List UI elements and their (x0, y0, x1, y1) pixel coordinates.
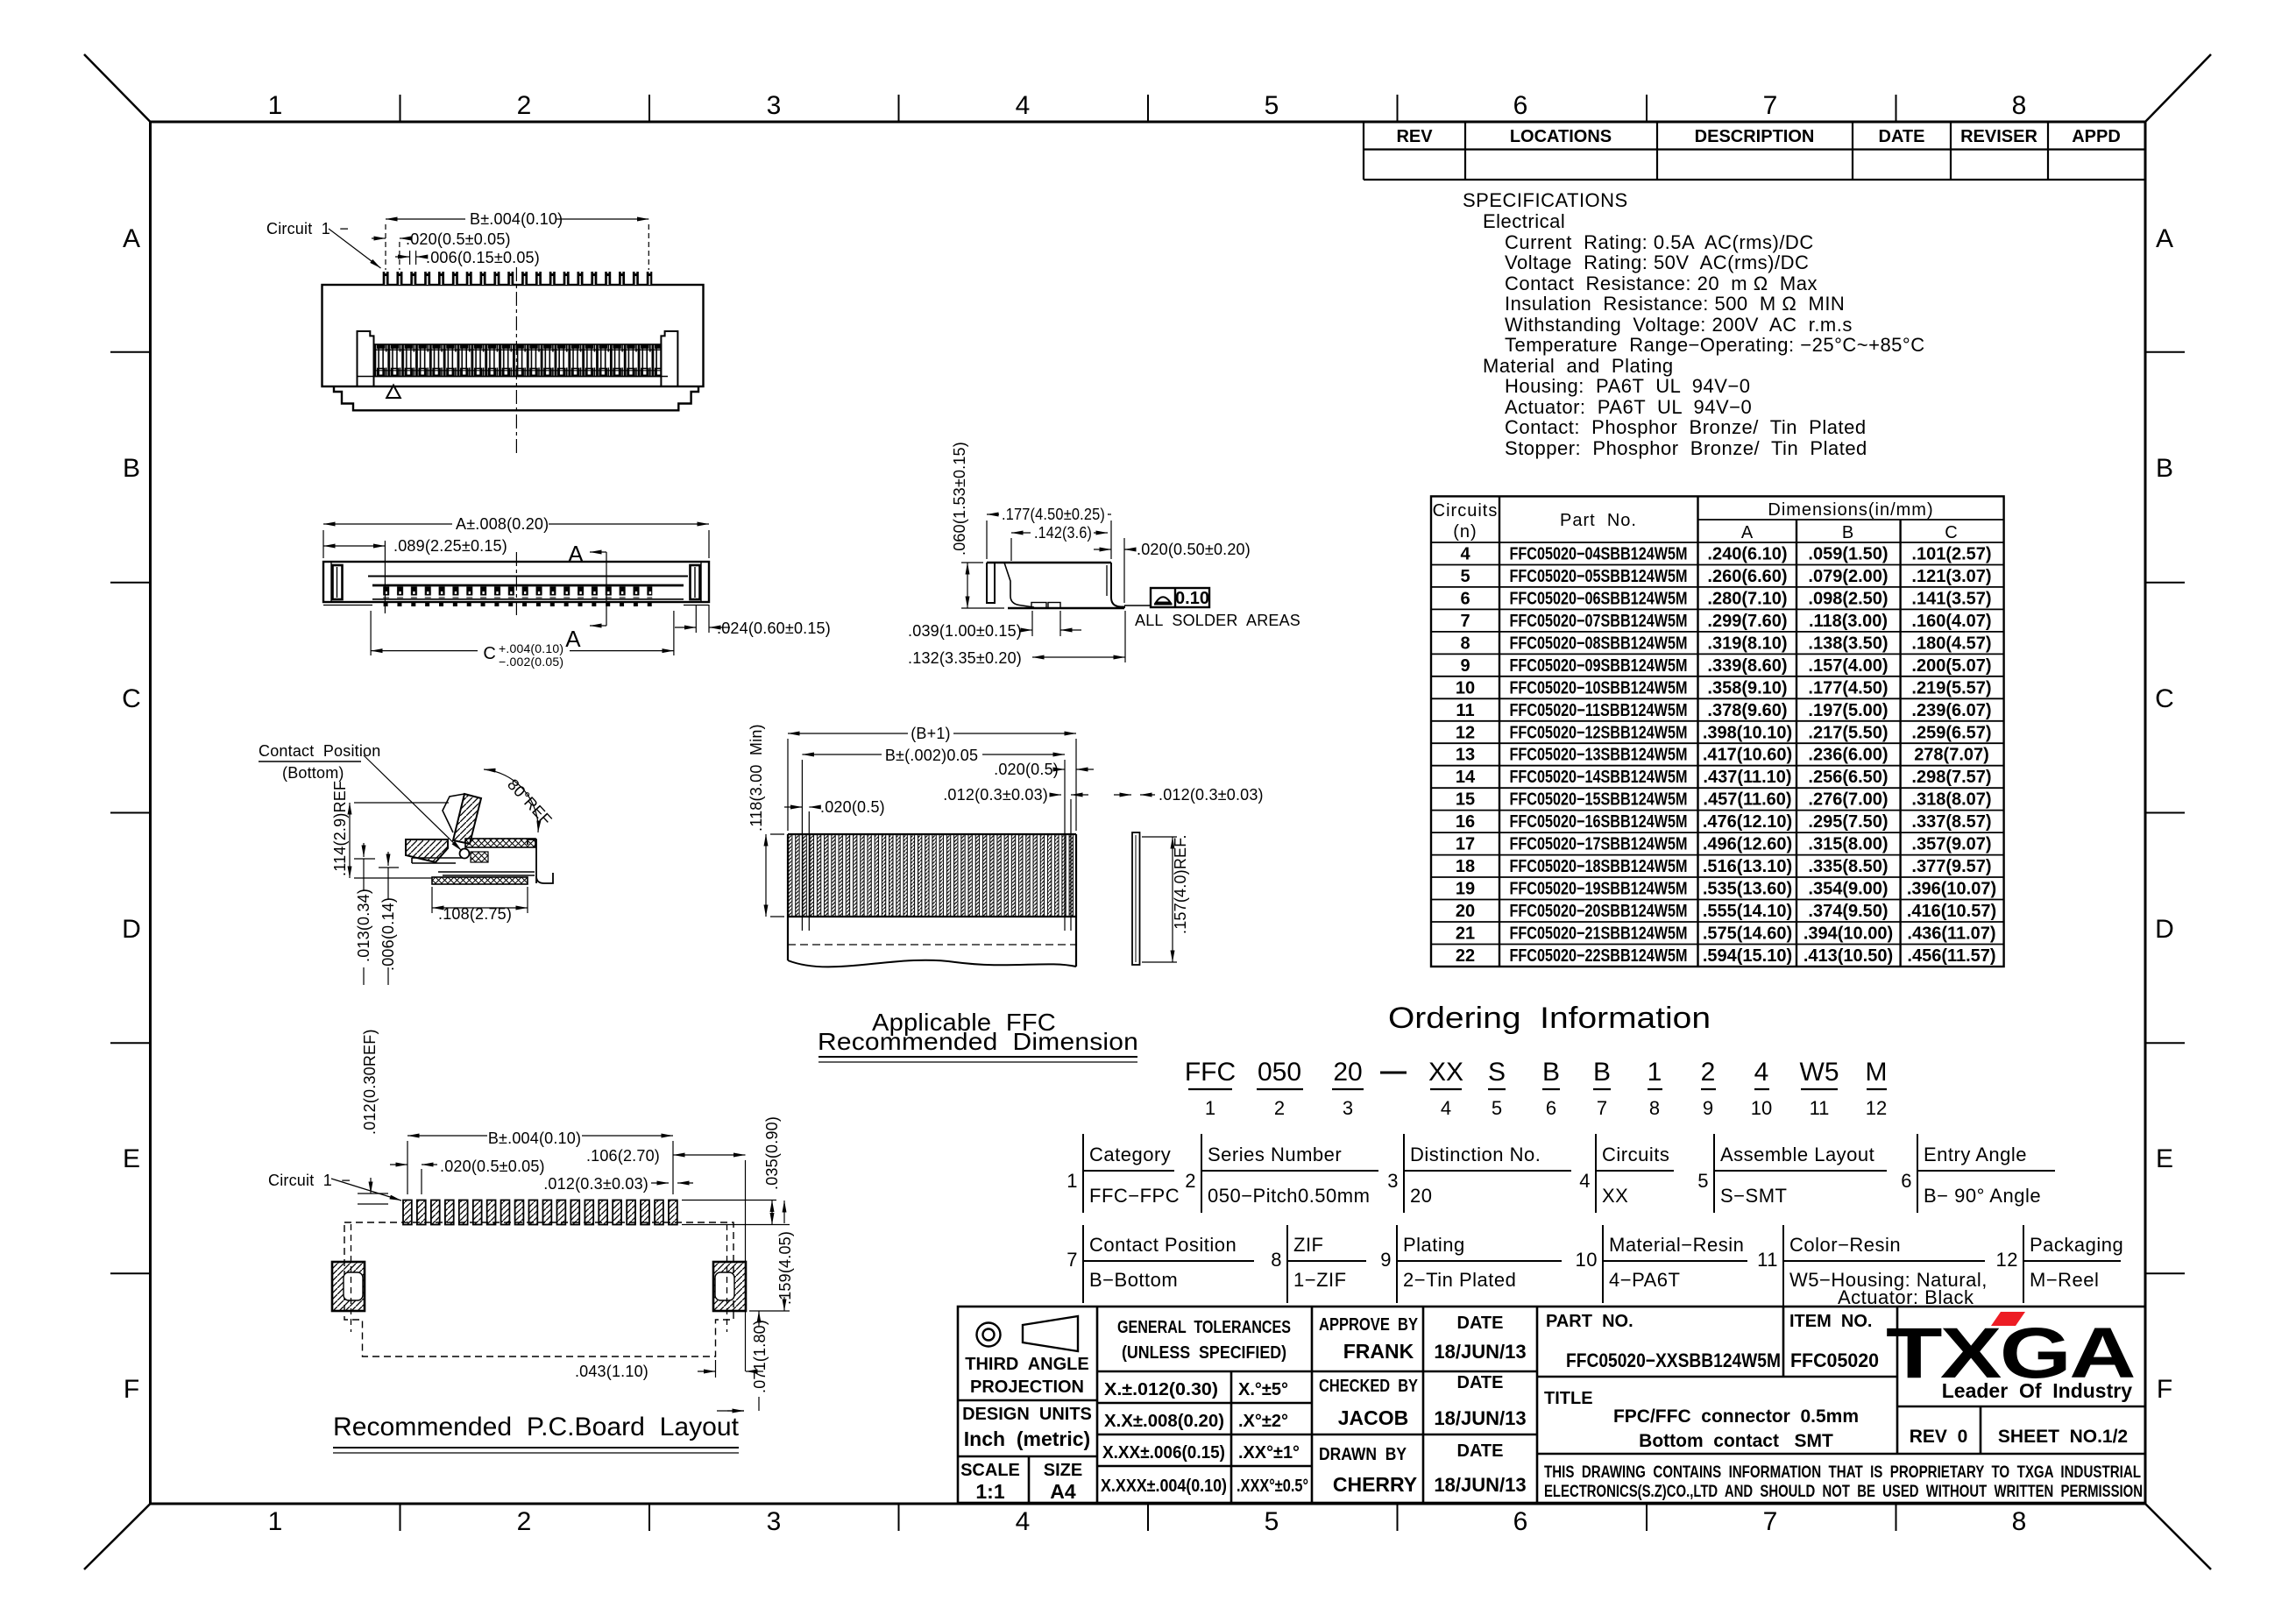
svg-text:Insulation Resistance: 500 M: Insulation Resistance: 500 M Ω MIN (1505, 293, 1845, 315)
svg-text:.396(10.07): .396(10.07) (1907, 880, 1996, 899)
svg-text:.358(9.10): .358(9.10) (1707, 678, 1787, 698)
svg-text:2: 2 (517, 1507, 532, 1536)
svg-text:5: 5 (1265, 91, 1279, 120)
svg-text:X.XX±.006(0.15): X.XX±.006(0.15) (1102, 1443, 1225, 1463)
svg-text:Distinction No.: Distinction No. (1410, 1144, 1541, 1165)
svg-text:2: 2 (517, 91, 532, 120)
svg-text:E: E (2156, 1144, 2173, 1173)
svg-text:.378(9.60): .378(9.60) (1707, 701, 1787, 720)
svg-text:THIS DRAWING CONTAINS INFOR: THIS DRAWING CONTAINS INFORMATION THAT I… (1544, 1463, 2141, 1482)
svg-text:FFC05020−04SBB124W5M: FFC05020−04SBB124W5M (1510, 545, 1688, 564)
svg-text:10: 10 (1751, 1097, 1772, 1119)
svg-text:Housing: PA6T UL 94V−0: Housing: PA6T UL 94V−0 (1505, 375, 1751, 397)
svg-text:.012(0.3±0.03): .012(0.3±0.03) (943, 786, 1048, 804)
svg-text:.177(4.50): .177(4.50) (1808, 678, 1888, 698)
svg-text:.108(2.75): .108(2.75) (438, 905, 512, 923)
svg-text:.318(8.07): .318(8.07) (1911, 790, 1991, 810)
svg-text:7: 7 (1597, 1097, 1607, 1119)
svg-text:FFC05020−16SBB124W5M: FFC05020−16SBB124W5M (1510, 812, 1688, 832)
svg-text:6: 6 (1460, 589, 1470, 608)
svg-text:6: 6 (1901, 1170, 1912, 1192)
svg-text:ELECTRONICS(S.Z)CO.,LTD AND: ELECTRONICS(S.Z)CO.,LTD AND SHOULD NOT B… (1544, 1483, 2143, 1501)
svg-text:5: 5 (1697, 1170, 1709, 1192)
svg-text:.555(14.10): .555(14.10) (1703, 902, 1792, 921)
svg-text:1: 1 (1205, 1097, 1215, 1119)
svg-text:.012(0.30REF): .012(0.30REF) (361, 1029, 379, 1135)
svg-text:.516(13.10): .516(13.10) (1703, 857, 1792, 876)
svg-text:Voltage Rating: 50V AC(rms)/: Voltage Rating: 50V AC(rms)/DC (1505, 251, 1809, 273)
svg-text:(B+1): (B+1) (911, 725, 951, 742)
svg-text:20: 20 (1456, 902, 1475, 921)
svg-text:9: 9 (1703, 1097, 1713, 1119)
svg-text:.276(7.00): .276(7.00) (1808, 790, 1888, 810)
svg-text:.159(4.05): .159(4.05) (776, 1231, 794, 1305)
svg-text:Bottom contact SMT: Bottom contact SMT (1639, 1431, 1833, 1451)
svg-text:M: M (1866, 1058, 1888, 1087)
svg-text:Stopper: Phosphor Bronze/ T: Stopper: Phosphor Bronze/ Tin Plated (1505, 437, 1867, 459)
svg-text:17: 17 (1456, 835, 1475, 854)
svg-text:4: 4 (1460, 545, 1470, 564)
svg-text:.118(3.00): .118(3.00) (1809, 612, 1888, 631)
svg-text:Contact Resistance: 20 m Ω: Contact Resistance: 20 m Ω Max (1505, 273, 1818, 294)
svg-text:3: 3 (1387, 1170, 1399, 1192)
svg-text:1:1: 1:1 (975, 1480, 1004, 1503)
svg-text:.398(10.10): .398(10.10) (1703, 723, 1792, 742)
svg-text:.594(15.10): .594(15.10) (1703, 946, 1792, 966)
svg-text:DRAWN BY: DRAWN BY (1319, 1445, 1407, 1464)
svg-text:.437(11.10): .437(11.10) (1703, 768, 1791, 787)
svg-text:B: B (2156, 454, 2173, 483)
svg-text:Assemble Layout: Assemble Layout (1720, 1144, 1874, 1165)
svg-text:C: C (483, 644, 496, 663)
svg-text:(UNLESS SPECIFIED): (UNLESS SPECIFIED) (1122, 1343, 1286, 1363)
svg-text:22: 22 (1456, 946, 1475, 966)
svg-text:.006(0.15±0.05): .006(0.15±0.05) (426, 249, 540, 266)
svg-text:.219(5.57): .219(5.57) (1911, 678, 1991, 698)
svg-text:1: 1 (1648, 1058, 1662, 1087)
svg-text:F: F (124, 1375, 139, 1404)
svg-text:+.004(0.10): +.004(0.10) (499, 641, 563, 655)
svg-text:1: 1 (268, 91, 283, 120)
svg-text:B: B (1542, 1058, 1560, 1087)
svg-text:Color−Resin: Color−Resin (1789, 1234, 1901, 1256)
svg-text:Entry Angle: Entry Angle (1924, 1144, 2027, 1165)
svg-text:B− 90° Angle: B− 90° Angle (1924, 1185, 2041, 1207)
svg-text:SIZE: SIZE (1044, 1461, 1082, 1480)
svg-text:3: 3 (1343, 1097, 1353, 1119)
svg-text:.339(8.60): .339(8.60) (1707, 656, 1787, 676)
svg-text:8: 8 (1271, 1249, 1282, 1271)
svg-text:15: 15 (1456, 790, 1475, 810)
svg-text:.060(1.53±0.15): .060(1.53±0.15) (951, 442, 968, 556)
svg-text:APPROVE BY: APPROVE BY (1319, 1315, 1419, 1335)
svg-text:.020(0.5±0.05): .020(0.5±0.05) (440, 1158, 545, 1175)
svg-text:1: 1 (1067, 1170, 1078, 1192)
svg-text:.012(0.3±0.03): .012(0.3±0.03) (1159, 786, 1264, 804)
svg-text:D: D (2155, 915, 2174, 944)
svg-text:2: 2 (1185, 1170, 1196, 1192)
svg-text:A: A (1741, 523, 1754, 542)
svg-text:.239(6.07): .239(6.07) (1911, 701, 1991, 720)
svg-text:FFC05020−18SBB124W5M: FFC05020−18SBB124W5M (1510, 857, 1688, 876)
svg-text:Contact: Phosphor Bronze/ T: Contact: Phosphor Bronze/ Tin Plated (1505, 416, 1867, 438)
svg-text:DESIGN UNITS: DESIGN UNITS (962, 1405, 1092, 1424)
svg-text:A: A (2156, 224, 2173, 253)
svg-text:9: 9 (1460, 656, 1470, 676)
svg-text:12: 12 (1996, 1249, 2018, 1271)
svg-text:ITEM NO.: ITEM NO. (1789, 1312, 1872, 1331)
svg-text:.071(1.80): .071(1.80) (751, 1320, 769, 1393)
svg-text:DATE: DATE (1457, 1373, 1504, 1392)
svg-text:.013(0.34): .013(0.34) (355, 889, 372, 962)
svg-text:7: 7 (1460, 612, 1470, 631)
svg-text:8: 8 (1649, 1097, 1660, 1119)
svg-text:4−PA6T: 4−PA6T (1609, 1269, 1680, 1291)
svg-text:.377(9.57): .377(9.57) (1911, 857, 1991, 876)
svg-text:.006(0.14): .006(0.14) (379, 897, 397, 971)
svg-text:S: S (1488, 1058, 1506, 1087)
svg-text:REV 0: REV 0 (1910, 1427, 1968, 1447)
svg-text:.089(2.25±0.15): .089(2.25±0.15) (393, 537, 507, 555)
svg-text:.260(6.60): .260(6.60) (1707, 567, 1787, 586)
svg-text:.535(13.60): .535(13.60) (1703, 880, 1792, 899)
svg-text:.035(0.90): .035(0.90) (763, 1116, 781, 1190)
svg-text:DATE: DATE (1879, 127, 1925, 146)
svg-text:.416(10.57): .416(10.57) (1907, 902, 1996, 921)
svg-text:FFC05020−07SBB124W5M: FFC05020−07SBB124W5M (1510, 612, 1688, 631)
svg-text:A: A (123, 224, 140, 253)
svg-text:SPECIFICATIONS: SPECIFICATIONS (1463, 189, 1628, 211)
svg-text:GENERAL TOLERANCES: GENERAL TOLERANCES (1117, 1318, 1291, 1337)
svg-text:FFC05020−21SBB124W5M: FFC05020−21SBB124W5M (1510, 924, 1688, 944)
svg-text:Circuit 1 −: Circuit 1 − (266, 220, 349, 237)
svg-text:18/JUN/13: 18/JUN/13 (1434, 1474, 1526, 1496)
svg-text:Withstanding Voltage: 200V A: Withstanding Voltage: 200V AC r.m.s (1505, 314, 1853, 336)
svg-text:Circuit 1 −: Circuit 1 − (268, 1172, 351, 1189)
svg-text:18: 18 (1456, 857, 1475, 876)
svg-text:Leader Of Industry: Leader Of Industry (1942, 1379, 2132, 1402)
svg-text:.457(11.60): .457(11.60) (1703, 790, 1791, 810)
svg-text:13: 13 (1456, 746, 1475, 765)
svg-text:F: F (2157, 1375, 2172, 1404)
svg-text:DATE: DATE (1457, 1441, 1504, 1461)
svg-text:.020(0.5): .020(0.5) (994, 761, 1059, 778)
svg-text:B±.004(0.10): B±.004(0.10) (488, 1130, 581, 1147)
svg-text:.299(7.60): .299(7.60) (1707, 612, 1787, 631)
svg-text:APPD: APPD (2072, 127, 2121, 146)
svg-text:9: 9 (1380, 1249, 1392, 1271)
svg-text:4: 4 (1441, 1097, 1451, 1119)
svg-text:XX: XX (1602, 1185, 1628, 1207)
svg-text:.456(11.57): .456(11.57) (1907, 946, 1995, 966)
svg-text:FFC05020−10SBB124W5M: FFC05020−10SBB124W5M (1510, 678, 1688, 698)
svg-text:.357(9.07): .357(9.07) (1911, 835, 1991, 854)
svg-text:FFC05020−19SBB124W5M: FFC05020−19SBB124W5M (1510, 880, 1688, 899)
svg-text:A4: A4 (1050, 1480, 1076, 1503)
svg-text:.098(2.50): .098(2.50) (1808, 589, 1888, 608)
svg-text:1−ZIF: 1−ZIF (1293, 1269, 1347, 1291)
svg-text:.335(8.50): .335(8.50) (1808, 857, 1888, 876)
svg-text:.354(9.00): .354(9.00) (1808, 880, 1888, 899)
svg-text:.177(4.50±0.25): .177(4.50±0.25) (1002, 506, 1105, 523)
svg-text:THIRD ANGLE: THIRD ANGLE (965, 1355, 1088, 1374)
svg-text:Category: Category (1089, 1144, 1171, 1165)
svg-text:.319(8.10): .319(8.10) (1707, 634, 1787, 653)
svg-text:FFC05020: FFC05020 (1790, 1349, 1879, 1371)
svg-text:FFC05020−15SBB124W5M: FFC05020−15SBB124W5M (1510, 790, 1688, 810)
svg-text:8: 8 (2012, 91, 2027, 120)
svg-text:(n): (n) (1453, 522, 1477, 542)
svg-text:PROJECTION: PROJECTION (970, 1378, 1084, 1397)
svg-text:050: 050 (1258, 1058, 1301, 1087)
svg-text:.240(6.10): .240(6.10) (1707, 545, 1787, 564)
svg-text:Current Rating: 0.5A AC(rms): Current Rating: 0.5A AC(rms)/DC (1505, 231, 1814, 253)
svg-text:.417(10.60): .417(10.60) (1703, 746, 1792, 765)
svg-text:20: 20 (1410, 1185, 1432, 1207)
svg-text:Ordering Information: Ordering Information (1388, 1002, 1711, 1035)
svg-text:Electrical: Electrical (1483, 210, 1565, 232)
svg-text:.180(4.57): .180(4.57) (1911, 634, 1991, 653)
svg-text:Contact Position: Contact Position (1089, 1234, 1237, 1256)
svg-text:B: B (1842, 523, 1854, 542)
svg-text:.256(6.50): .256(6.50) (1808, 768, 1888, 787)
svg-text:X.XXX±.004(0.10): X.XXX±.004(0.10) (1101, 1477, 1227, 1496)
svg-text:2−Tin Plated: 2−Tin Plated (1403, 1269, 1516, 1291)
svg-text:REV: REV (1396, 127, 1433, 146)
svg-text:4: 4 (1754, 1058, 1769, 1087)
svg-text:.043(1.10): .043(1.10) (575, 1363, 648, 1380)
svg-text:.012(0.3±0.03): .012(0.3±0.03) (543, 1175, 648, 1193)
svg-text:DATE: DATE (1457, 1314, 1504, 1333)
svg-text:7: 7 (1763, 1507, 1778, 1536)
svg-text:Dimensions(in/mm): Dimensions(in/mm) (1768, 500, 1933, 520)
svg-text:ZIF: ZIF (1293, 1234, 1324, 1256)
svg-text:Temperature Range−Operating:: Temperature Range−Operating: −25°C~+85°C (1505, 334, 1925, 356)
svg-text:2: 2 (1274, 1097, 1285, 1119)
svg-text:−.002(0.05): −.002(0.05) (499, 655, 563, 669)
svg-text:DESCRIPTION: DESCRIPTION (1695, 127, 1815, 146)
svg-text:(Bottom): (Bottom) (282, 764, 344, 782)
svg-text:.295(7.50): .295(7.50) (1808, 812, 1888, 832)
svg-text:21: 21 (1456, 924, 1475, 944)
svg-text:Recommended P.C.Board Layout: Recommended P.C.Board Layout (333, 1413, 740, 1441)
svg-text:.114(2.9)REF: .114(2.9)REF (331, 781, 349, 876)
svg-text:7: 7 (1067, 1249, 1078, 1271)
svg-text:.X°±2°: .X°±2° (1238, 1412, 1288, 1431)
svg-text:20: 20 (1333, 1058, 1362, 1087)
svg-text:Series Number: Series Number (1208, 1144, 1342, 1165)
svg-text:.020(0.5): .020(0.5) (820, 798, 885, 816)
svg-text:.106(2.70): .106(2.70) (586, 1147, 660, 1165)
svg-text:.476(12.10): .476(12.10) (1703, 812, 1792, 832)
svg-text:B: B (123, 454, 140, 483)
svg-text:.020(0.5±0.05): .020(0.5±0.05) (406, 230, 511, 248)
svg-text:.121(3.07): .121(3.07) (1911, 567, 1991, 586)
svg-text:ALL SOLDER AREAS: ALL SOLDER AREAS (1135, 612, 1300, 629)
svg-text:5: 5 (1492, 1097, 1502, 1119)
svg-text:4: 4 (1016, 91, 1031, 120)
svg-text:FFC05020−09SBB124W5M: FFC05020−09SBB124W5M (1510, 656, 1688, 676)
svg-text:Material and Plating: Material and Plating (1483, 355, 1674, 377)
svg-text:1: 1 (268, 1507, 283, 1536)
svg-text:FFC05020−20SBB124W5M: FFC05020−20SBB124W5M (1510, 902, 1688, 921)
svg-text:5: 5 (1460, 567, 1470, 586)
svg-text:6: 6 (1513, 1507, 1528, 1536)
svg-text:FFC05020−XXSBB124W5M: FFC05020−XXSBB124W5M (1566, 1349, 1781, 1371)
svg-text:.200(5.07): .200(5.07) (1911, 656, 1991, 676)
svg-text:FFC05020−05SBB124W5M: FFC05020−05SBB124W5M (1510, 567, 1688, 586)
svg-text:LOCATIONS: LOCATIONS (1510, 127, 1612, 146)
svg-text:Actuator: PA6T UL 94V−0: Actuator: PA6T UL 94V−0 (1505, 396, 1752, 418)
svg-text:A±.008(0.20): A±.008(0.20) (456, 515, 549, 533)
svg-text:Circuits: Circuits (1602, 1144, 1669, 1165)
svg-text:.337(8.57): .337(8.57) (1911, 812, 1991, 832)
svg-text:10: 10 (1576, 1249, 1598, 1271)
svg-text:FFC05020−17SBB124W5M: FFC05020−17SBB124W5M (1510, 835, 1688, 854)
svg-text:6: 6 (1546, 1097, 1556, 1119)
svg-text:FFC05020−06SBB124W5M: FFC05020−06SBB124W5M (1510, 589, 1688, 608)
svg-text:X.±.012(0.30): X.±.012(0.30) (1104, 1380, 1218, 1399)
svg-text:C: C (2155, 684, 2174, 713)
svg-text:19: 19 (1456, 880, 1475, 899)
svg-text:SCALE: SCALE (960, 1461, 1020, 1480)
svg-text:12: 12 (1866, 1097, 1887, 1119)
svg-text:FRANK: FRANK (1343, 1340, 1414, 1363)
svg-text:.374(9.50): .374(9.50) (1808, 902, 1888, 921)
svg-text:PART NO.: PART NO. (1546, 1312, 1633, 1331)
svg-text:FFC05020−11SBB124W5M: FFC05020−11SBB124W5M (1510, 701, 1688, 720)
svg-text:.079(2.00): .079(2.00) (1808, 567, 1888, 586)
svg-text:18/JUN/13: 18/JUN/13 (1434, 1341, 1526, 1363)
svg-text:.118(3.00 Min): .118(3.00 Min) (748, 724, 765, 832)
svg-text:FFC05020−14SBB124W5M: FFC05020−14SBB124W5M (1510, 768, 1688, 787)
svg-text:JACOB: JACOB (1338, 1406, 1409, 1429)
svg-text:C: C (122, 684, 141, 713)
svg-text:.XX°±1°: .XX°±1° (1238, 1443, 1300, 1463)
svg-text:.436(11.07): .436(11.07) (1907, 924, 1995, 944)
svg-text:3: 3 (767, 1507, 782, 1536)
svg-text:M−Reel: M−Reel (2030, 1269, 2099, 1291)
svg-text:.413(10.50): .413(10.50) (1803, 946, 1893, 966)
svg-text:.101(2.57): .101(2.57) (1911, 545, 1991, 564)
svg-text:FPC/FFC connector 0.5mm: FPC/FFC connector 0.5mm (1613, 1406, 1859, 1427)
svg-text:TITLE: TITLE (1544, 1389, 1593, 1408)
svg-text:.236(6.00): .236(6.00) (1808, 746, 1888, 765)
svg-text:FFC05020−12SBB124W5M: FFC05020−12SBB124W5M (1510, 723, 1688, 742)
svg-text:W5: W5 (1800, 1058, 1839, 1087)
svg-text:.496(12.60): .496(12.60) (1703, 835, 1792, 854)
svg-text:Actuator: Black: Actuator: Black (1838, 1286, 1974, 1308)
svg-text:B: B (1593, 1058, 1611, 1087)
svg-text:X.°±5°: X.°±5° (1238, 1380, 1288, 1399)
svg-text:.280(7.10): .280(7.10) (1707, 589, 1787, 608)
svg-text:FFC05020−22SBB124W5M: FFC05020−22SBB124W5M (1510, 946, 1688, 966)
svg-text:SHEET NO.1/2: SHEET NO.1/2 (1998, 1427, 2128, 1447)
svg-text:B−Bottom: B−Bottom (1089, 1269, 1178, 1291)
svg-text:CHECKED BY: CHECKED BY (1319, 1377, 1419, 1396)
svg-text:E: E (123, 1144, 140, 1173)
svg-text:.197(5.00): .197(5.00) (1808, 701, 1888, 720)
svg-text:.059(1.50): .059(1.50) (1808, 545, 1888, 564)
svg-text:.217(5.50): .217(5.50) (1808, 723, 1888, 742)
svg-text:11: 11 (1810, 1097, 1830, 1119)
svg-text:B±.004(0.10): B±.004(0.10) (470, 210, 563, 228)
svg-text:18/JUN/13: 18/JUN/13 (1434, 1407, 1526, 1429)
svg-text:.298(7.57): .298(7.57) (1911, 768, 1991, 787)
svg-text:.160(4.07): .160(4.07) (1911, 612, 1991, 631)
svg-text:Plating: Plating (1403, 1234, 1465, 1256)
svg-text:10: 10 (1456, 678, 1475, 698)
svg-text:4: 4 (1016, 1507, 1031, 1536)
svg-text:.157(4.0)REF.: .157(4.0)REF. (1172, 834, 1189, 934)
svg-text:D: D (122, 915, 141, 944)
svg-text:2: 2 (1701, 1058, 1716, 1087)
svg-text:.259(6.57): .259(6.57) (1911, 723, 1991, 742)
svg-text:278(7.07): 278(7.07) (1914, 746, 1989, 765)
svg-text:.157(4.00): .157(4.00) (1808, 656, 1888, 676)
svg-text:14: 14 (1456, 768, 1476, 787)
svg-text:11: 11 (1757, 1249, 1778, 1271)
svg-text:Circuits: Circuits (1433, 501, 1499, 521)
svg-text:FFC05020−08SBB124W5M: FFC05020−08SBB124W5M (1510, 634, 1688, 653)
svg-text:FFC−FPC: FFC−FPC (1089, 1185, 1180, 1207)
svg-text:CHERRY: CHERRY (1333, 1473, 1417, 1496)
svg-text:FFC05020−13SBB124W5M: FFC05020−13SBB124W5M (1510, 746, 1688, 765)
svg-text:4: 4 (1579, 1170, 1591, 1192)
svg-text:Part No.: Part No. (1560, 511, 1637, 530)
svg-text:X.X±.008(0.20): X.X±.008(0.20) (1104, 1412, 1224, 1431)
svg-text:A: A (568, 541, 584, 567)
svg-text:FFC: FFC (1185, 1058, 1236, 1087)
svg-text:0.10: 0.10 (1175, 589, 1209, 608)
svg-text:.138(3.50): .138(3.50) (1808, 634, 1888, 653)
svg-text:C: C (1945, 523, 1958, 542)
svg-text:8: 8 (1460, 634, 1470, 653)
svg-text:16: 16 (1456, 812, 1475, 832)
svg-text:050−Pitch0.50mm: 050−Pitch0.50mm (1208, 1185, 1370, 1207)
svg-text:.394(10.00): .394(10.00) (1803, 924, 1893, 944)
svg-text:Material−Resin: Material−Resin (1609, 1234, 1744, 1256)
svg-text:B±(.002)0.05: B±(.002)0.05 (885, 747, 978, 764)
svg-text:.315(8.00): .315(8.00) (1808, 835, 1888, 854)
svg-text:3: 3 (767, 91, 782, 120)
svg-text:5: 5 (1265, 1507, 1279, 1536)
svg-text:Packaging: Packaging (2030, 1234, 2123, 1256)
svg-text:Contact Position: Contact Position (259, 742, 380, 760)
svg-text:S−SMT: S−SMT (1720, 1185, 1787, 1207)
svg-text:7: 7 (1763, 91, 1778, 120)
svg-text:REVISER: REVISER (1960, 127, 2037, 146)
svg-text:.XXX°±0.5°: .XXX°±0.5° (1237, 1477, 1308, 1496)
svg-text:12: 12 (1456, 723, 1475, 742)
svg-text:.575(14.60): .575(14.60) (1703, 924, 1792, 944)
svg-text:Inch (metric): Inch (metric) (964, 1427, 1090, 1450)
svg-text:6: 6 (1513, 91, 1528, 120)
svg-text:.132(3.35±0.20): .132(3.35±0.20) (908, 649, 1022, 667)
svg-text:8: 8 (2012, 1507, 2027, 1536)
svg-text:Recommended Dimension: Recommended Dimension (818, 1028, 1138, 1055)
svg-text:.020(0.50±0.20): .020(0.50±0.20) (1137, 541, 1251, 558)
svg-text:XX: XX (1428, 1058, 1463, 1087)
svg-text:.039(1.00±0.15): .039(1.00±0.15) (908, 622, 1022, 640)
svg-text:.141(3.57): .141(3.57) (1911, 589, 1991, 608)
svg-text:A: A (565, 626, 581, 652)
svg-text:.024(0.60±0.15): .024(0.60±0.15) (717, 620, 831, 637)
svg-text:11: 11 (1456, 701, 1474, 720)
svg-text:.142(3.6): .142(3.6) (1034, 524, 1092, 542)
